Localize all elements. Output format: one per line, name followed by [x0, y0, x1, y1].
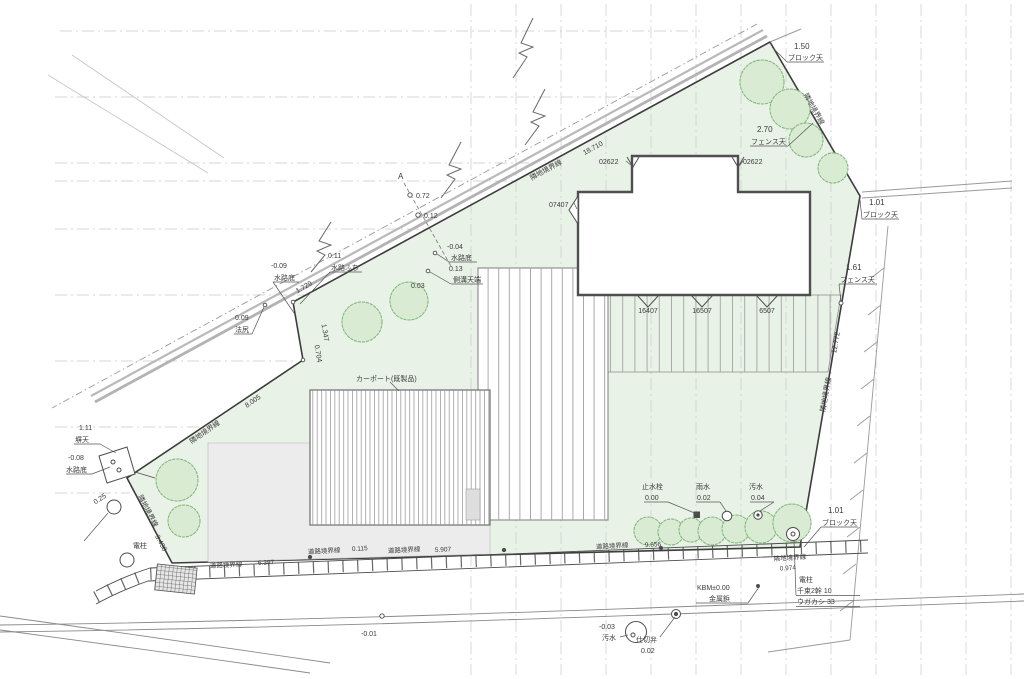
gate-valve-dot — [674, 612, 677, 615]
road-boundary-4-len: 9.656 — [645, 541, 662, 549]
road-boundary-3-len: 5.907 — [435, 546, 452, 554]
level-013-desc: 側溝天端 — [453, 275, 481, 284]
rainwater-pit-icon — [722, 511, 732, 521]
road-sewer-value: -0.03 — [599, 624, 615, 631]
level-fence-e-desc: フェンス天 — [840, 276, 875, 284]
level-003: 0.03 — [411, 283, 425, 290]
rain-value: 0.02 — [697, 495, 711, 502]
door-code-3: 6507 — [759, 308, 775, 315]
level-fence-ne-value: 2.70 — [757, 125, 773, 134]
sewer-pit-dot — [757, 514, 759, 516]
tree-icon — [168, 505, 200, 537]
pole-left-icon — [120, 553, 134, 567]
stop-valve-label: 止水栓 — [642, 482, 663, 491]
channel-box-dot — [111, 460, 115, 464]
level-m004-value: -0.04 — [447, 244, 463, 251]
gate-valve-value: 0.02 — [641, 648, 655, 655]
channel-box-dot — [117, 468, 121, 472]
pole-right-line1: 千束2幹 10 — [797, 586, 832, 595]
carport-label: カーポート(既製品) — [356, 374, 417, 383]
level-009-value: 0.09 — [235, 315, 249, 322]
site-plan-svg: 1.50 ブロック天 2.70 フェンス天 1.01 ブロック天 1.61 フェ… — [0, 0, 1024, 679]
pole-left-label: 電柱 — [133, 541, 147, 550]
rain-label: 雨水 — [696, 482, 710, 491]
site-plan-drawing: 1.50 ブロック天 2.70 フェンス天 1.01 ブロック天 1.61 フェ… — [0, 0, 1024, 679]
level-011-value: 0.11 — [328, 253, 341, 260]
door-code-side: 07407 — [549, 202, 569, 209]
level-m008-desc: 水路底 — [66, 465, 87, 474]
level-m008-value: -0.08 — [68, 455, 84, 462]
level-013-value: 0.13 — [449, 266, 463, 273]
tree-icon — [818, 153, 848, 183]
level-block-ne-desc: ブロック天 — [788, 53, 823, 62]
stop-valve-value: 0.00 — [645, 495, 659, 502]
level-111-value: 1.11 — [79, 425, 92, 432]
level-fence-ne-desc: フェンス天 — [751, 138, 786, 146]
level-111-desc: 塀天 — [75, 435, 89, 444]
manhole-dot — [631, 633, 635, 637]
tree-icon — [156, 459, 198, 501]
road-sewer-desc: 汚水 — [602, 633, 616, 642]
door-code-1: 16407 — [638, 308, 658, 315]
section-marker-a: A — [398, 172, 404, 181]
sewer-value: 0.04 — [751, 495, 765, 502]
sewer-label: 汚水 — [749, 482, 763, 491]
level-012: 0.12 — [424, 213, 438, 220]
boundary-se-len: 0.974 — [780, 564, 797, 572]
level-011-desc: 水路ふち — [331, 263, 359, 272]
grating — [155, 564, 197, 594]
carport-roof-stripes — [310, 390, 490, 525]
window-code-right: 02622 — [743, 159, 763, 166]
road-boundary-2-len: 0.115 — [352, 545, 369, 553]
road-point-value: -0.01 — [361, 631, 377, 638]
road-boundary-1-len: 6.397 — [258, 559, 275, 567]
step-pad — [466, 489, 480, 520]
level-m009-value: -0.09 — [271, 263, 287, 270]
kbm-label: KBM±0.00 — [697, 585, 730, 592]
pole-025-icon — [107, 500, 121, 514]
level-m009-desc: 水路底 — [274, 273, 295, 282]
pole-right-label: 電柱 — [799, 575, 813, 584]
level-block-e2-desc: ブロック天 — [822, 518, 857, 527]
level-009-desc: 法尻 — [235, 325, 249, 334]
level-072: 0.72 — [416, 193, 430, 200]
window-code-left: 02622 — [599, 159, 619, 166]
kbm-sub: 金属鋲 — [709, 594, 730, 603]
door-code-2: 16507 — [692, 308, 712, 315]
level-m004-desc: 水路底 — [451, 253, 472, 262]
deck-stripes — [478, 268, 608, 520]
gate-valve-label: 仕切弁 — [636, 635, 657, 644]
terrace-deck — [608, 295, 841, 372]
level-fence-e-value: 1.61 — [846, 263, 862, 272]
tree-icon — [342, 302, 382, 342]
utility-pole-center — [791, 532, 795, 536]
level-block-ne-value: 1.50 — [794, 42, 810, 51]
level-block-e1-value: 1.01 — [869, 198, 885, 207]
pole-right-line2: ウガカシ 33 — [797, 597, 835, 606]
level-block-e2-value: 1.01 — [828, 506, 844, 515]
level-block-e1-desc: ブロック天 — [863, 210, 898, 219]
